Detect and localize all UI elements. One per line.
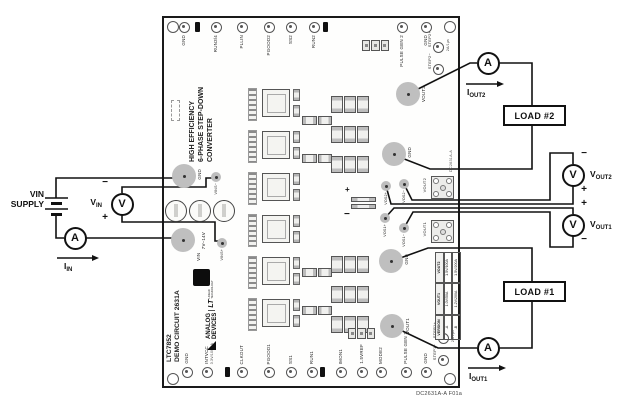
pad-label: GND (407, 146, 417, 158)
figure-caption: DC2631A-A F01a (390, 391, 462, 397)
sense-select-jumper: + − (342, 186, 378, 224)
cap-bank-row (331, 156, 369, 173)
sense-pad-icon (217, 238, 227, 248)
power-stage (248, 86, 300, 124)
sense-pad-label: VINS+ (220, 249, 224, 261)
jumper-2pin (302, 268, 332, 277)
wire-load2-in (499, 63, 532, 106)
testpoint-pad-icon (401, 367, 412, 378)
iout2-label: IOUT2 (467, 87, 485, 99)
driver-parts-icon (248, 298, 257, 331)
jumper-pin-icon (302, 306, 317, 315)
testpoint-label: CLKOUT (239, 345, 244, 364)
testpoint-pad-icon (433, 64, 444, 75)
header-pin-icon (348, 328, 356, 339)
jumper-pin-icon (318, 268, 333, 277)
capacitor-icon (293, 273, 300, 285)
version-table: VERSION VOUT1 VOUT2 -A 1.0V/50A 1.5V/100… (435, 252, 461, 340)
vout1-meter-label: VOUT1 (590, 219, 612, 231)
testpoint-label: GND (181, 35, 186, 46)
testpoint-label: MODE2 (378, 347, 383, 364)
capacitor-icon (293, 231, 300, 243)
testpoint-pad-icon (309, 22, 320, 33)
wire-vin-neg (56, 215, 64, 239)
inductor-icon (262, 299, 290, 327)
testpoint-pad-icon (323, 22, 328, 32)
capacitor-icon (331, 316, 343, 333)
testpoint-label: PULSE GEN 1 (403, 332, 408, 364)
capacitor-icon (331, 256, 343, 273)
load2-box: LOAD #2 (503, 105, 566, 126)
testpoint-pad-icon (320, 367, 325, 377)
jumper-2pin (302, 116, 332, 125)
testpoint-label: GND (423, 353, 428, 364)
linear-tech-logo: LT LINEAR TECHNOLOGY (208, 285, 215, 311)
power-stage (248, 170, 300, 208)
jumper-pin-icon (318, 154, 333, 163)
jumper-2pin (302, 154, 332, 163)
testpoint-pad-icon (438, 355, 449, 366)
pad-label: VOUT1 (405, 318, 415, 334)
capacitor-icon (344, 96, 356, 113)
capacitor-icon (293, 189, 300, 201)
iout1-label: IOUT1 (469, 371, 487, 383)
header-pin-icon (367, 328, 375, 339)
plus-sign: + (99, 212, 111, 223)
testpoint-pad-icon (225, 367, 230, 377)
pad-label: GND (197, 168, 207, 180)
connector-pin-icon (446, 178, 452, 184)
cap-bank-row (331, 286, 369, 303)
pad-label: VIN 7V–14V (196, 232, 206, 261)
testpoint-pad-icon (202, 367, 213, 378)
jumper-pin-icon (318, 116, 333, 125)
pad-icon (382, 142, 406, 166)
testpoint-label: STEP1− (433, 344, 438, 360)
testpoint-label: STEP2− (428, 53, 433, 69)
plus-sign: + (578, 198, 590, 209)
driver-parts-icon (248, 256, 257, 289)
plus-sign: + (578, 184, 590, 195)
testpoint-label: PLLIN (239, 35, 244, 49)
ammeter-icon: A (64, 227, 87, 250)
jumper-pin-icon (302, 154, 317, 163)
testpoint-pad-icon (179, 22, 190, 33)
driver-parts-icon (248, 130, 257, 163)
pad-icon (380, 314, 404, 338)
connector-pin-icon (433, 222, 439, 228)
inductor-icon (262, 89, 290, 117)
testpoint-pad-icon (307, 367, 318, 378)
cap-bank-row (331, 126, 369, 143)
connector-pin-icon (433, 191, 439, 197)
pad-label: GND (404, 253, 414, 265)
pad-icon (396, 82, 420, 106)
jumper-pin-icon (318, 306, 333, 315)
capacitor-icon (357, 96, 369, 113)
testpoint-pad-icon (336, 367, 347, 378)
controller-ic (193, 269, 210, 286)
pin-header (348, 328, 375, 339)
minus-sign: − (578, 148, 590, 159)
jumper-pin-icon (302, 268, 317, 277)
connector-label: VOUT2 (423, 178, 428, 192)
inductor-icon (262, 173, 290, 201)
capacitor-icon (344, 126, 356, 143)
testpoint-label: RUN1 (309, 351, 314, 364)
testpoint-pad-icon (211, 22, 222, 33)
output-connector: VOUT2 (431, 176, 454, 199)
sense-pad-label: VOS2− (402, 190, 406, 203)
testpoint-label: STEP2+ (428, 31, 433, 47)
board-title: HIGH EFFICIENCY 6-PHASE STEP-DOWN CONVER… (188, 66, 215, 162)
connector-pin-icon (446, 222, 452, 228)
plus-sign: + (345, 185, 350, 194)
minus-sign: − (578, 234, 590, 245)
sense-pad-icon (381, 181, 391, 191)
sense-pad-label: VOS1− (402, 234, 406, 247)
pad-icon (172, 164, 196, 188)
iin-label: IIN (64, 261, 72, 273)
testpoint-pad-icon (286, 22, 297, 33)
capacitor-icon (293, 257, 300, 269)
header-pin-icon (357, 328, 365, 339)
silkscreen-box (171, 100, 180, 121)
testpoint-label: IMON1 (338, 349, 343, 364)
capacitor-icon (357, 156, 369, 173)
sense-pad-label: VINS− (214, 183, 218, 195)
adi-triangle-icon (207, 341, 216, 350)
minus-sign: − (99, 177, 111, 188)
testpoint-sublabel: 2A/1µs (446, 39, 450, 51)
jumper-pin-icon (351, 204, 376, 209)
board-etch-text: DC2631A-A (449, 150, 453, 172)
testpoint-label: RUN3/4 (213, 35, 218, 52)
capacitor-icon (293, 299, 300, 311)
capacitor-icon (344, 156, 356, 173)
pad-icon (171, 228, 195, 252)
wire-load1-in (499, 302, 532, 348)
bulk-capacitor-icon (213, 200, 235, 222)
testpoint-pad-icon (264, 22, 275, 33)
analog-devices-logo: ANALOG DEVICES LT LINEAR TECHNOLOGY (201, 288, 222, 350)
connector-label: VOUT1 (423, 222, 428, 236)
power-stage (248, 296, 300, 334)
capacitor-icon (344, 286, 356, 303)
capacitor-icon (357, 256, 369, 273)
board-name: LTC7852 DEMO CIRCUIT 2631A (166, 258, 183, 362)
sense-pad-label: VOS2+ (384, 192, 388, 205)
testpoint-pad-icon (237, 367, 248, 378)
testpoint-pad-icon (237, 22, 248, 33)
sense-pad-label: VOS1+ (383, 224, 387, 237)
driver-parts-icon (248, 172, 257, 205)
output-connector: VOUT1 (431, 220, 454, 243)
testpoint-pad-icon (433, 42, 444, 53)
inductor-icon (262, 215, 290, 243)
bulk-capacitor-icon (189, 200, 211, 222)
power-stage (248, 254, 300, 292)
sense-pad-icon (399, 179, 409, 189)
ammeter-icon: A (477, 337, 500, 360)
testpoint-label: PULSE GEN 2 (399, 35, 404, 67)
testpoint-label: PGOOD1 (266, 344, 271, 364)
pin-header (362, 40, 389, 51)
capacitor-icon (293, 215, 300, 227)
ammeter-icon: A (477, 52, 500, 75)
sense-pad-icon (380, 213, 390, 223)
testpoint-label: GND (184, 353, 189, 364)
capacitor-icon (357, 286, 369, 303)
figure-canvas: GND RUN3/4 PLLIN PGOOD2 SS2 RUN2 (0, 0, 628, 418)
capacitor-icon (293, 105, 300, 117)
power-stage (248, 128, 300, 166)
load1-box: LOAD #1 (503, 281, 566, 302)
capacitor-icon (331, 286, 343, 303)
cap-bank-row (331, 256, 369, 273)
jumper-pin-icon (351, 197, 376, 202)
testpoint-pad-icon (421, 367, 432, 378)
driver-parts-icon (248, 88, 257, 121)
testpoint-label: 1.5VREF (359, 344, 364, 364)
voltmeter-icon: V (111, 193, 134, 216)
testpoint-pad-icon (357, 367, 368, 378)
testpoint-label: SS1 (288, 355, 293, 364)
connector-pin-icon (440, 185, 446, 191)
capacitor-icon (344, 256, 356, 273)
adi-logo-text: ANALOG DEVICES (206, 313, 218, 339)
testpoint-pad-icon (182, 367, 193, 378)
pad-icon (379, 249, 403, 273)
pad-label: VOUT2 (421, 86, 431, 102)
bulk-capacitor-icon (165, 200, 187, 222)
testpoint-label: PGOOD2 (266, 35, 271, 55)
capacitor-icon (331, 156, 343, 173)
power-stage (248, 212, 300, 250)
header-pin-icon (371, 40, 379, 51)
jumper-pin-icon (302, 116, 317, 125)
capacitor-icon (331, 96, 343, 113)
header-pin-icon (362, 40, 370, 51)
capacitor-icon (293, 89, 300, 101)
connector-pin-icon (446, 191, 452, 197)
capacitor-icon (293, 315, 300, 327)
inductor-icon (262, 131, 290, 159)
testpoint-pad-icon (286, 367, 297, 378)
vin-meter-label: VIN (84, 197, 102, 209)
testpoint-pad-icon (195, 22, 200, 32)
vin-supply-label: VIN SUPPLY (6, 189, 44, 209)
connector-pin-icon (433, 235, 439, 241)
testpoint-label: RUN2 (311, 35, 316, 48)
inductor-icon (262, 257, 290, 285)
capacitor-icon (357, 126, 369, 143)
capacitor-icon (331, 126, 343, 143)
minus-sign: − (344, 209, 350, 220)
testpoint-pad-icon (376, 367, 387, 378)
jumper-2pin (302, 306, 332, 315)
capacitor-icon (293, 131, 300, 143)
cap-bank-row (331, 96, 369, 113)
connector-pin-icon (440, 229, 446, 235)
sense-pad-icon (399, 223, 409, 233)
testpoint-pad-icon (264, 367, 275, 378)
testpoint-label: SS2 (288, 35, 293, 44)
capacitor-icon (293, 173, 300, 185)
header-pin-icon (381, 40, 389, 51)
connector-pin-icon (433, 178, 439, 184)
testpoint-pad-icon (397, 22, 408, 33)
capacitor-icon (293, 147, 300, 159)
sense-pad-icon (211, 172, 221, 182)
driver-parts-icon (248, 214, 257, 247)
vout2-meter-label: VOUT2 (590, 169, 612, 181)
connector-pin-icon (446, 235, 452, 241)
